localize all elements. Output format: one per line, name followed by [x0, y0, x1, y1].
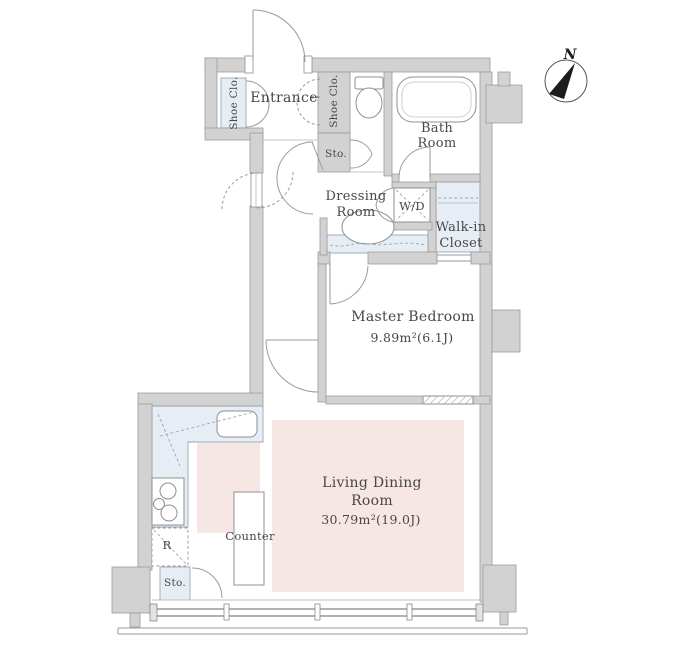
bath-label-line2: Room — [418, 136, 457, 151]
window-end-frame — [150, 604, 157, 621]
washer-dryer-label: W/D — [399, 199, 425, 213]
shoe-closet-right-label: Shoe Clo. — [328, 74, 340, 127]
wall-segment — [392, 182, 436, 188]
lower-storage-label: Sto. — [164, 577, 186, 589]
wall-segment — [112, 567, 150, 613]
walk-in-closet-label-line2: Closet — [439, 236, 483, 251]
shoe-closet-left-label: Shoe Clo. — [228, 76, 240, 129]
burner — [161, 505, 177, 521]
door-swing-mark — [330, 266, 368, 304]
windows-balcony — [118, 600, 527, 634]
wall-segment — [326, 396, 423, 404]
door-swing-mark — [277, 142, 313, 214]
north-label: N — [563, 47, 578, 63]
bathtub — [397, 77, 476, 122]
window-mullion — [407, 604, 412, 620]
wall-segment — [320, 218, 327, 255]
door-swing-mark — [399, 147, 430, 178]
door-swing-mark — [192, 568, 222, 598]
wall-segment — [138, 393, 263, 406]
wall-segment — [318, 264, 326, 402]
master-bedroom-label: Master Bedroom — [351, 309, 474, 325]
window-mullion — [224, 604, 229, 620]
dressing-label-line2: Room — [337, 205, 376, 220]
living-dining-label-line1: Living Dining — [322, 475, 422, 491]
floor-plan-page: Entrance Shoe Clo. Shoe Clo. Sto. Bath R… — [0, 0, 700, 650]
kitchen-sink — [217, 411, 257, 437]
wall-segment — [486, 85, 522, 123]
wall-segment — [498, 72, 510, 86]
balcony-lines — [118, 628, 527, 634]
wall-segment — [480, 72, 492, 602]
living-dining-label-line2: Room — [351, 493, 393, 509]
wall-segment — [471, 252, 490, 264]
wall-segment — [430, 174, 480, 182]
living-dining-area: 30.79m²(19.0J) — [321, 512, 420, 527]
wall-segment — [473, 396, 490, 404]
wall-segment — [483, 565, 516, 612]
window-mullion — [315, 604, 320, 620]
wall-segment — [205, 58, 217, 135]
burner — [160, 483, 176, 499]
door-swing-mark — [253, 10, 305, 62]
counter-label: Counter — [225, 529, 275, 543]
bath-label-line1: Bath — [421, 121, 453, 136]
wall-segment — [138, 404, 152, 570]
wall-segment — [392, 174, 399, 182]
wall-segment — [392, 222, 432, 230]
toilet-bowl — [356, 88, 382, 118]
walk-in-closet-label-line1: Walk-in — [436, 220, 487, 235]
wall-segment — [368, 252, 437, 264]
refrigerator-label: R — [163, 538, 172, 552]
hall-storage-label: Sto. — [325, 148, 347, 160]
compass: N — [545, 47, 587, 102]
wall-segment — [310, 58, 490, 72]
dressing-label-line1: Dressing — [326, 189, 387, 204]
closet-opening — [437, 253, 471, 263]
toilet-tank — [355, 77, 383, 89]
wall-segment — [130, 613, 140, 627]
wall-segment — [250, 206, 263, 396]
wall-segment — [384, 72, 392, 176]
door-swing-mark — [266, 340, 318, 392]
wall-segment — [492, 310, 520, 352]
entrance-label: Entrance — [250, 90, 317, 106]
wall-segment — [250, 133, 263, 173]
window-end-frame — [476, 604, 483, 621]
master-bedroom-area: 9.89m²(6.1J) — [371, 330, 454, 345]
door-swing-mark — [350, 140, 372, 168]
wall-segment — [500, 612, 508, 625]
door-frame — [245, 56, 253, 73]
floor-plan: Entrance Shoe Clo. Shoe Clo. Sto. Bath R… — [0, 0, 700, 650]
